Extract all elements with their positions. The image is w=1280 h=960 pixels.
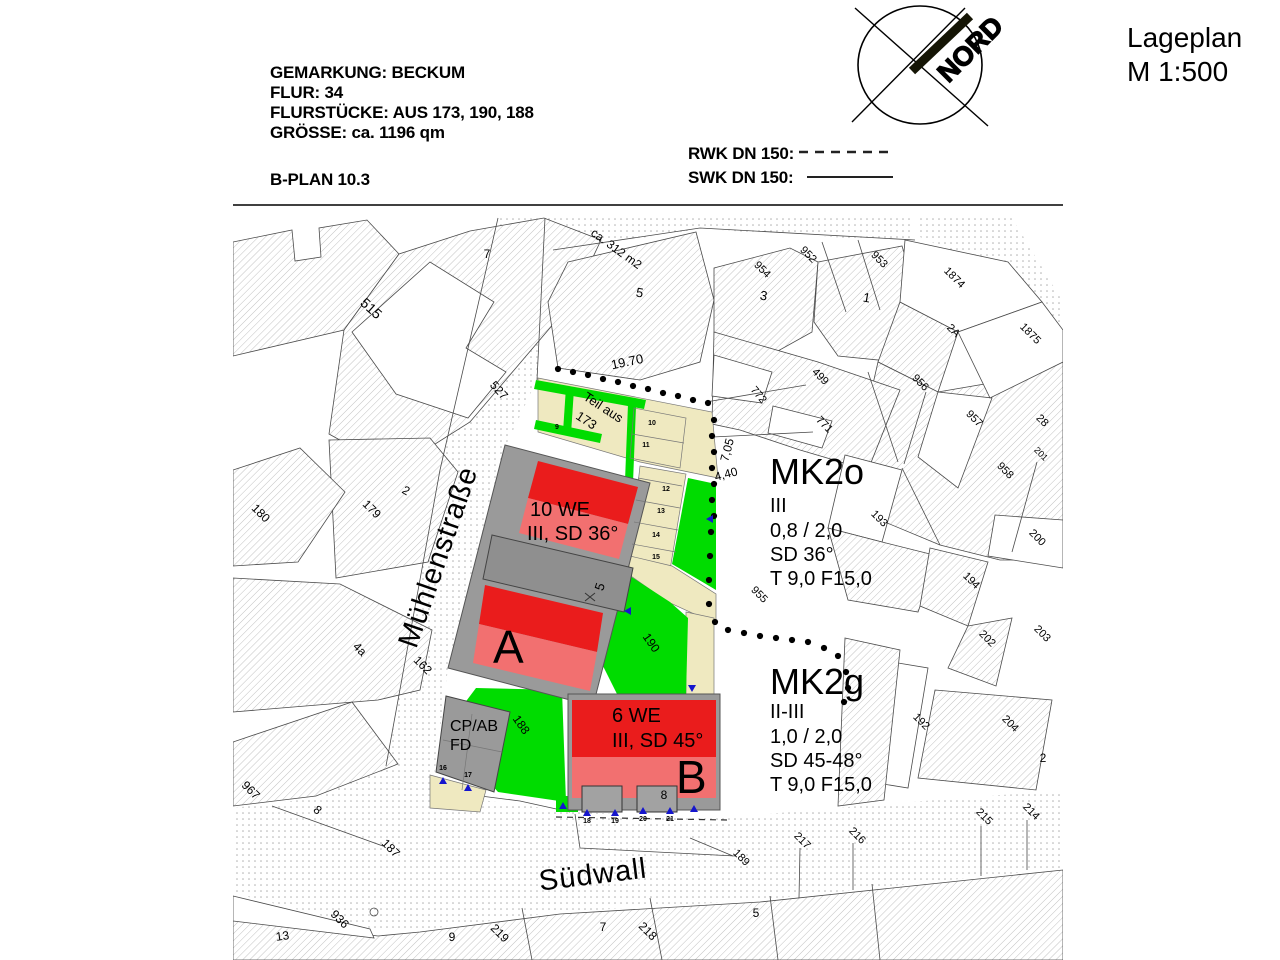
title-line2: M 1:500 <box>1127 56 1228 87</box>
boundary-dot <box>805 639 811 645</box>
boundary-dot <box>705 400 711 406</box>
boundary-dot <box>789 637 795 643</box>
header-line: GEMARKUNG: BECKUM <box>270 63 465 82</box>
parcel-label: 8 <box>661 788 668 802</box>
map-area: 515752721791804a162967818793613921972185… <box>233 218 1063 960</box>
parcel-label: 7 <box>600 920 607 934</box>
building-b-info2: III, SD 45° <box>612 730 703 752</box>
boundary-dot <box>725 627 731 633</box>
zone-line: 0,8 / 2,0 <box>770 520 842 542</box>
boundary-dot <box>630 383 636 389</box>
boundary-dot <box>821 645 827 651</box>
parcel-label: 203 <box>1031 623 1052 644</box>
building-b-info1: 6 WE <box>612 705 661 727</box>
parcel-label: 15 <box>652 554 660 561</box>
boundary-dot <box>757 633 763 639</box>
parcel-label: 2 <box>1040 751 1047 765</box>
boundary-dot <box>600 376 606 382</box>
boundary-dot <box>741 630 747 636</box>
boundary-dot <box>690 397 696 403</box>
parcel-label: 10 <box>648 420 656 427</box>
boundary-dot <box>709 433 715 439</box>
building-a-info2: III, SD 36° <box>527 523 618 545</box>
bplan-label: B-PLAN 10.3 <box>270 170 370 189</box>
boundary-dot <box>711 417 717 423</box>
carport-label1: CP/AB <box>450 718 498 735</box>
legend: RWK DN 150: SWK DN 150: <box>688 144 893 187</box>
building-b-letter: B <box>676 751 707 803</box>
zone-line: T 9,0 F15,0 <box>770 774 872 796</box>
north-arrow: NORD <box>852 6 1009 126</box>
boundary-dot <box>645 386 651 392</box>
parcel-label: 13 <box>657 508 665 515</box>
zone-line: T 9,0 F15,0 <box>770 568 872 590</box>
boundary-dot <box>706 577 712 583</box>
parcel-label: 5 <box>753 906 760 920</box>
parcel-label: 13 <box>275 928 290 944</box>
zone-name: MK2o <box>770 451 864 492</box>
site-plan-map: GEMARKUNG: BECKUM FLUR: 34 FLURSTÜCKE: A… <box>0 0 1280 960</box>
parcel-label: 12 <box>662 486 670 493</box>
parcel-label: 18 <box>583 818 591 825</box>
boundary-dot <box>660 390 666 396</box>
lageplan-page: GEMARKUNG: BECKUM FLUR: 34 FLURSTÜCKE: A… <box>0 0 1280 960</box>
garage-block <box>582 786 622 812</box>
parcel-label: 9 <box>555 424 559 431</box>
boundary-dot <box>570 369 576 375</box>
title-line1: Lageplan <box>1127 22 1242 53</box>
parcel-label: 17 <box>464 772 472 779</box>
header-line: FLURSTÜCKE: AUS 173, 190, 188 <box>270 103 534 122</box>
parcel-label: 14 <box>652 532 660 539</box>
zone-line: SD 45-48° <box>770 750 863 772</box>
boundary-dot <box>835 653 841 659</box>
building-a-letter: A <box>493 621 524 673</box>
plan-title: Lageplan M 1:500 <box>1127 22 1242 87</box>
boundary-dot <box>706 601 712 607</box>
parcel-label: 7,05 <box>717 437 737 463</box>
parcel-label: 19 <box>611 818 619 825</box>
parcel-label: 20 <box>639 816 647 823</box>
parcel-label: 9 <box>449 930 456 944</box>
building-a-info1: 10 WE <box>530 499 590 521</box>
parcel-label: 11 <box>642 442 650 449</box>
boundary-dot <box>615 379 621 385</box>
zone-name: MK2g <box>770 661 864 702</box>
header-line: FLUR: 34 <box>270 83 344 102</box>
boundary-dot <box>675 393 681 399</box>
legend-rwk-label: RWK DN 150: <box>688 144 794 163</box>
parcel-label: 7 <box>484 247 491 261</box>
boundary-dot <box>585 372 591 378</box>
header-line: GRÖSSE: ca. 1196 qm <box>270 123 445 142</box>
parcel-label: 16 <box>439 765 447 772</box>
zone-line: SD 36° <box>770 544 834 566</box>
boundary-dot <box>712 619 718 625</box>
north-label: NORD <box>932 11 1009 88</box>
boundary-dot <box>555 366 561 372</box>
path-area <box>686 612 714 696</box>
boundary-dot <box>711 449 717 455</box>
parcel-label: 955 <box>748 584 769 605</box>
carport-label2: FD <box>450 737 471 754</box>
zone-line: II-III <box>770 701 804 723</box>
legend-swk-label: SWK DN 150: <box>688 168 794 187</box>
header-info: GEMARKUNG: BECKUM FLUR: 34 FLURSTÜCKE: A… <box>270 63 534 189</box>
boundary-dot <box>773 635 779 641</box>
zone-line: III <box>770 495 787 517</box>
parcel-label: 21 <box>666 816 674 823</box>
zone-line: 1,0 / 2,0 <box>770 726 842 748</box>
boundary-dot <box>709 497 715 503</box>
boundary-dot <box>708 529 714 535</box>
boundary-dot <box>707 553 713 559</box>
